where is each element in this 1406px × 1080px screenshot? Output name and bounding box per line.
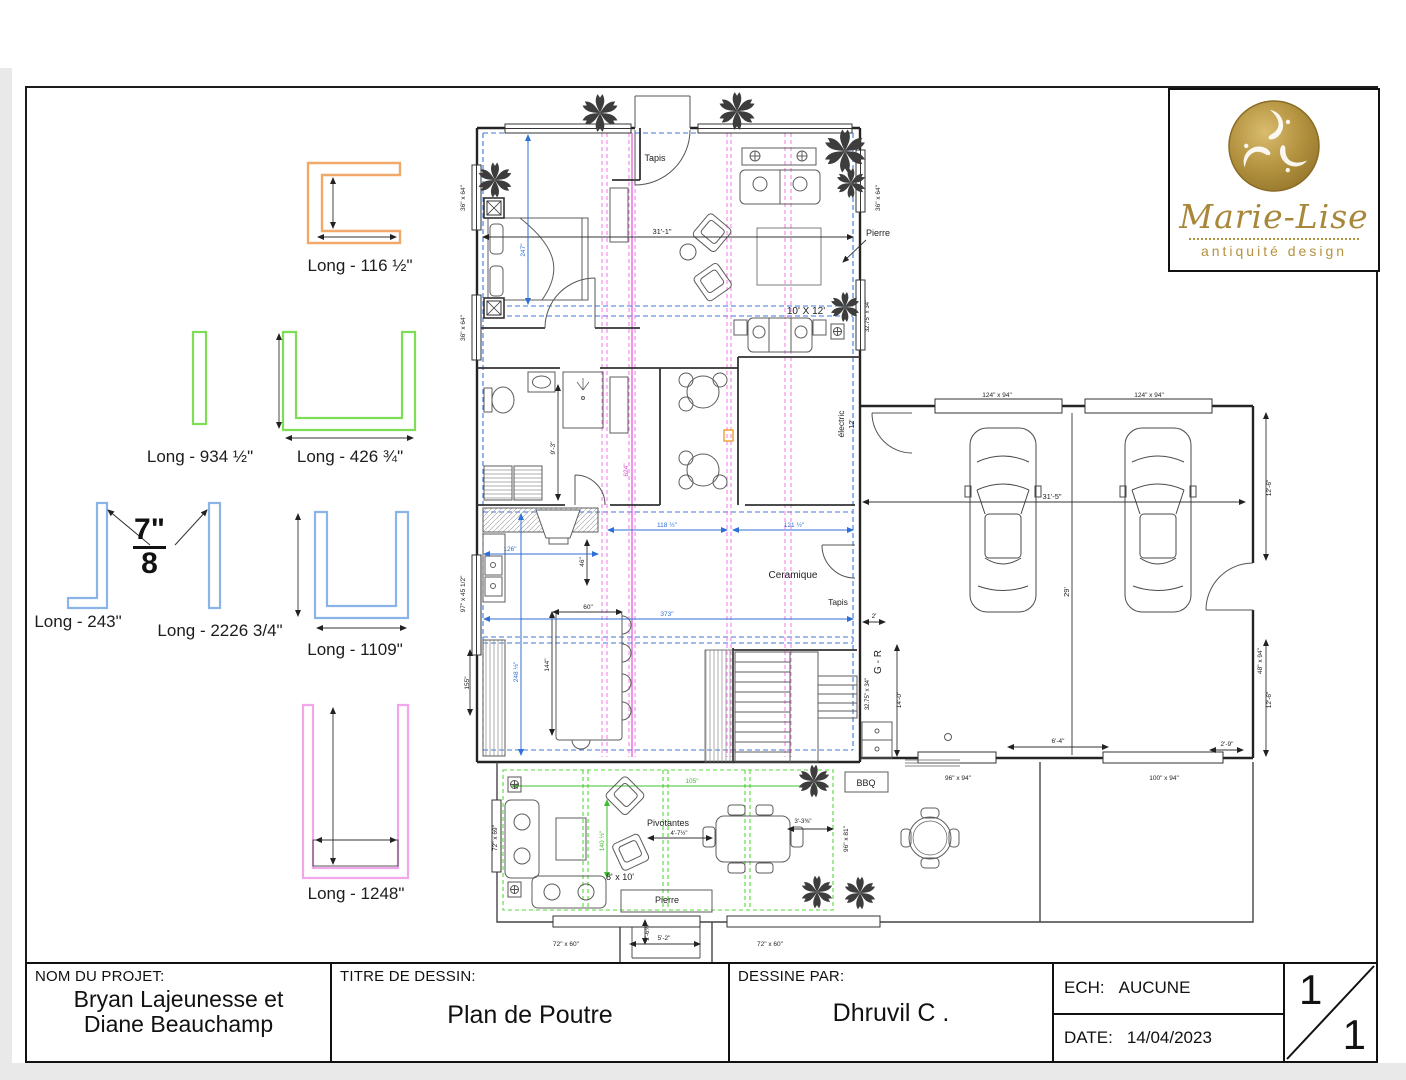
- page-number-total: 1: [1343, 1011, 1366, 1059]
- ceiling-fan-icons: [478, 92, 876, 909]
- floor-plan-drawing: TapisPierre10' X 12'31'-1"36" x 64"36" x…: [440, 85, 1285, 980]
- title-block-drawing-cell: TITRE DE DESSIN: Plan de Poutre: [330, 964, 728, 1061]
- plan-label: 12'-6": [1266, 691, 1273, 708]
- staircase: [735, 652, 857, 762]
- plan-label: 10' X 12': [787, 306, 825, 317]
- door-swings: [545, 130, 1253, 610]
- bathroom-fixtures: [484, 372, 603, 500]
- plan-label: 124" x 94": [982, 392, 1012, 399]
- plan-label: Tapis: [644, 153, 666, 163]
- beam-legend-label: Long - 2226 3/4": [157, 621, 282, 641]
- plan-label: Pivotantes: [647, 818, 690, 828]
- plan-label: 2'-6⅜": [645, 924, 651, 941]
- scale-value: AUCUNE: [1119, 978, 1191, 998]
- plan-label: 144": [544, 658, 551, 672]
- plan-label: 9'-3": [550, 441, 557, 455]
- beam-marker-orange: [724, 430, 733, 441]
- car-right: [1120, 428, 1196, 612]
- plan-label: électric: [836, 410, 846, 438]
- legend-shape-u-pink: [303, 705, 408, 878]
- plan-label: 12'-6": [1266, 479, 1273, 496]
- plan-label: 72" x 60": [757, 941, 784, 948]
- plan-label: 4'-7½": [671, 830, 688, 837]
- title-block-scale-date-cell: ECH: AUCUNE DATE: 14/04/2023: [1052, 964, 1283, 1061]
- plan-label: 124" x 94": [1134, 392, 1164, 399]
- beam-lines-blue: [483, 133, 853, 750]
- plan-label: 121 ½": [784, 521, 805, 529]
- plan-label: 36" x 64": [460, 314, 467, 341]
- plan-label: 118 ½": [657, 521, 678, 529]
- legend-fraction: 7" 8: [133, 515, 166, 579]
- patio-beam-lines-green: [503, 770, 833, 910]
- logo-divider: [1189, 238, 1359, 240]
- legend-shape-l-blue: [68, 503, 107, 608]
- patio-walls: [497, 762, 1253, 968]
- plan-label: 100" x 94": [1149, 775, 1179, 782]
- date-row: DATE: 14/04/2023: [1054, 1013, 1283, 1062]
- fraction-denominator: 8: [141, 547, 158, 580]
- page-number-current: 1: [1299, 966, 1322, 1014]
- plan-label: 31'-1": [652, 227, 671, 236]
- plan-label: 105": [685, 778, 699, 785]
- plan-label: 8' x 10': [606, 872, 634, 882]
- author-name: Dhruvil C .: [738, 999, 1044, 1028]
- page-margin-left: [0, 68, 12, 1080]
- date-value: 14/04/2023: [1127, 1028, 1212, 1048]
- logo-brand-name: Marie-Lise: [1170, 197, 1378, 236]
- windows: [472, 124, 1223, 763]
- beam-lines-magenta: [602, 133, 791, 757]
- legend-shape-u-green: [283, 332, 415, 430]
- beam-legend-label: Long - 243": [34, 612, 121, 632]
- plan-label: 140 ½": [598, 830, 606, 851]
- plan-label: 72" x 69": [492, 824, 499, 851]
- legend-shape-bar-green: [193, 332, 206, 424]
- fraction-numerator: 7: [134, 513, 151, 546]
- beam-legend-label: Long - 1109": [307, 640, 403, 660]
- beam-legend-label: Long - 116 ½": [308, 256, 413, 276]
- plan-label: 2'-9": [1221, 741, 1235, 748]
- beam-legend-label: Long - 934 ½": [147, 447, 253, 467]
- plan-label: 155": [464, 676, 471, 690]
- plan-label: 72" x 60": [553, 941, 580, 948]
- legend-shape-bar-blue: [209, 503, 220, 608]
- plan-label: 96" x 81": [843, 825, 850, 852]
- date-label: DATE:: [1064, 1028, 1113, 1048]
- plan-label: 3'-3⅜": [795, 819, 812, 825]
- plan-label: Pierre: [655, 895, 679, 905]
- logo-tagline: antiquité design: [1170, 243, 1378, 259]
- dimension-lines-black: [470, 237, 1266, 944]
- plan-label: 624": [623, 463, 630, 477]
- plan-label: 32.75" x 34": [865, 300, 871, 332]
- beam-legend-label: Long - 426 ¾": [297, 447, 403, 467]
- plan-label: 36" x 64": [875, 184, 882, 211]
- plan-label: BBQ: [856, 778, 875, 788]
- title-block: NOM DU PROJET: Bryan Lajeunesse et Diane…: [25, 962, 1378, 1063]
- drawing-title: Plan de Poutre: [340, 1001, 720, 1030]
- plan-label: 6'-4": [1052, 738, 1066, 745]
- plan-label: 96" x 94": [945, 775, 972, 782]
- company-logo: Marie-Lise antiquité design: [1168, 88, 1380, 272]
- scale-row: ECH: AUCUNE: [1054, 964, 1283, 1013]
- plan-label: 60": [583, 604, 593, 611]
- stair-rail-hatch: [705, 650, 733, 762]
- patio-furniture: [505, 772, 959, 912]
- plan-label: 29': [1062, 587, 1071, 597]
- page-margin-bottom: [0, 1063, 1406, 1080]
- plan-label: 31'-5": [1042, 492, 1061, 501]
- plan-label: 14'-0": [896, 691, 903, 708]
- plan-label: 247": [520, 243, 527, 257]
- title-block-project-cell: NOM DU PROJET: Bryan Lajeunesse et Diane…: [27, 964, 330, 1061]
- exterior-walls: [477, 128, 1253, 762]
- vent-box-icon: [484, 298, 504, 318]
- plan-label: 373": [660, 611, 674, 618]
- plan-label: 97" x 45 1/2": [460, 575, 467, 612]
- title-block-page-cell: 1 1: [1283, 964, 1376, 1061]
- car-left: [965, 428, 1041, 612]
- plan-label: 48" x 94": [1257, 647, 1264, 674]
- plan-label: 5'-2": [658, 935, 672, 942]
- plan-label: Ceramique: [769, 570, 818, 581]
- plan-label: 36" x 64": [460, 184, 467, 211]
- interior-walls: [477, 128, 860, 762]
- page: { "title_block": { "project_label": "NOM…: [0, 0, 1406, 1080]
- porch-lines: [635, 96, 690, 128]
- drawing-title-label: TITRE DE DESSIN:: [340, 968, 720, 985]
- legend-shape-u-blue: [315, 512, 408, 618]
- title-block-author-cell: DESSINE PAR: Dhruvil C .: [728, 964, 1052, 1061]
- plan-label: Tapis: [828, 597, 848, 607]
- plan-label: 46": [579, 557, 586, 567]
- project-name-line1: Bryan Lajeunesse et: [35, 987, 322, 1012]
- plan-label: G - R: [873, 650, 884, 674]
- legend-shape-c-orange: [308, 163, 400, 243]
- plan-label: 248 ½": [512, 661, 520, 682]
- project-name-line2: Diane Beauchamp: [35, 1012, 322, 1037]
- living-room-furniture: [680, 148, 844, 352]
- fraction-unit: ": [151, 513, 165, 546]
- plan-label: 2': [872, 613, 877, 620]
- plan-label: Pierre: [866, 228, 890, 238]
- beam-legend-label: Long - 1248": [308, 884, 405, 904]
- plan-label: 126": [503, 546, 517, 553]
- logo-medallion-icon: [1224, 96, 1324, 196]
- plan-label: 12': [849, 419, 856, 428]
- author-label: DESSINE PAR:: [738, 968, 1044, 985]
- scale-label: ECH:: [1064, 978, 1105, 998]
- project-label: NOM DU PROJET:: [35, 968, 322, 985]
- plan-label: 32.75" x 34": [865, 678, 871, 710]
- vent-box-icon: [484, 198, 504, 218]
